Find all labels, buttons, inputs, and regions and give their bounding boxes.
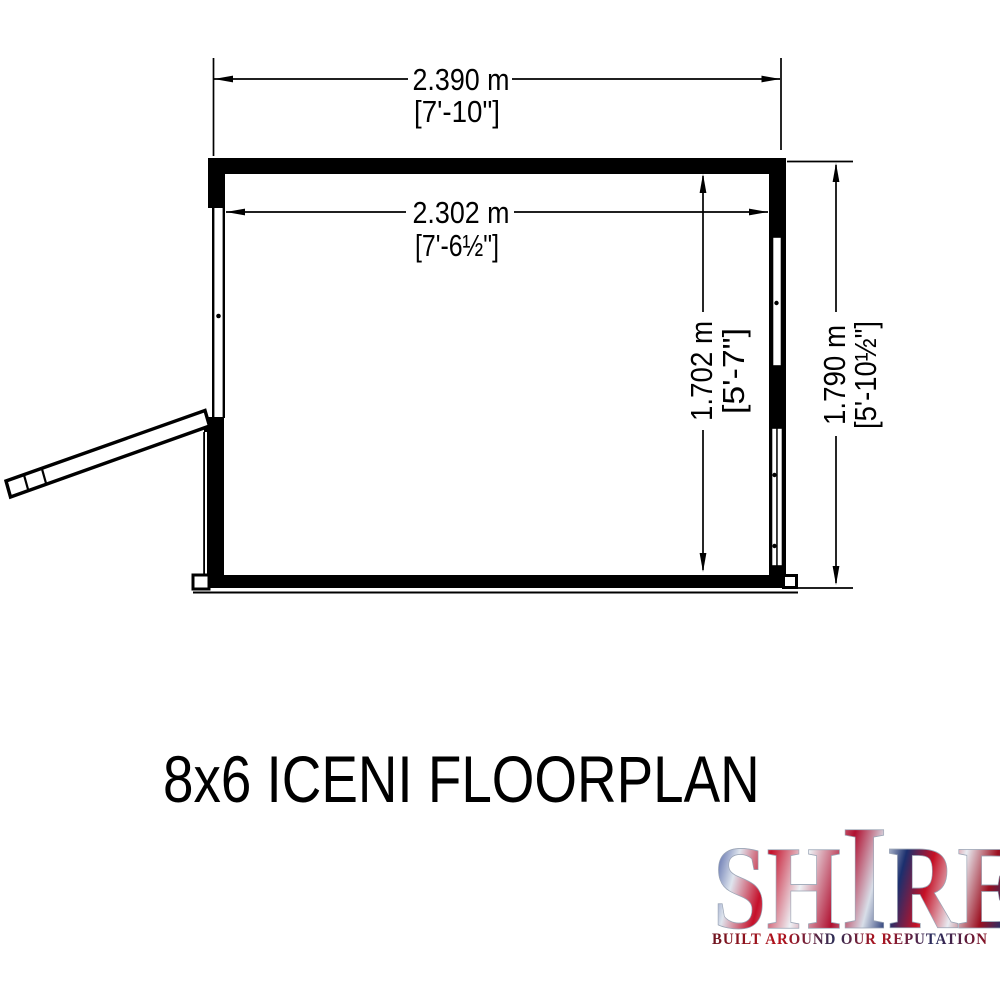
width-inner-imperial-label: [7'-6½"] [415, 228, 499, 263]
right-wall-marker-dot-1 [774, 301, 778, 305]
floorplan-page: 2.390 m [7'-10"] 2.302 m [7'-6½"] 1.702 … [0, 0, 1000, 1000]
top-right-corner-post [769, 158, 786, 230]
arrow-left [214, 76, 233, 83]
width-inner-metric-label: 2.302 m [413, 195, 510, 230]
bottom-left-corner-box [193, 575, 209, 589]
door-opening-outer-line [212, 208, 214, 418]
bottom-wall [210, 575, 783, 588]
depth-inner-metric-label: 1.702 m [684, 321, 719, 421]
door-opening-marker-dot [216, 314, 221, 319]
dimension-depth-inner: 1.702 m [5'-7"] [684, 174, 751, 572]
door-leaf-open [6, 411, 210, 498]
page-title: 8x6 ICENI FLOORPLAN [163, 746, 760, 812]
depth-outer-imperial-label: [5'-10½"] [848, 321, 883, 429]
arrow-top [833, 163, 840, 182]
top-wall [208, 158, 786, 174]
right-wall-marker-dot-2 [772, 473, 776, 477]
arrow-left [226, 209, 245, 216]
left-wall-outer-face-line [203, 432, 205, 575]
dimension-depth-outer: 1.790 m [5'-10½"] [787, 162, 883, 589]
arrow-top [700, 174, 707, 193]
dimension-width-outer: 2.390 m [7'-10"] [214, 58, 782, 156]
shire-logo: SHIRE BUILT AROUND OUR REPUTATION [700, 815, 1000, 955]
depth-inner-imperial-label: [5'-7"] [716, 328, 751, 414]
arrow-right [762, 76, 781, 83]
logo-tagline: BUILT AROUND OUR REPUTATION [712, 931, 988, 948]
width-outer-imperial-label: [7'-10"] [414, 94, 500, 129]
top-left-corner-post [208, 158, 225, 208]
width-outer-metric-label: 2.390 m [413, 62, 510, 97]
arrow-bottom [700, 553, 707, 572]
arrow-bottom [833, 566, 840, 585]
bottom-wall-outer-line [193, 592, 798, 594]
arrow-right [749, 209, 768, 216]
dimension-width-inner: 2.302 m [7'-6½"] [226, 195, 768, 263]
left-wall-lower [207, 432, 224, 575]
bottom-right-corner-box [784, 576, 797, 588]
right-wall-marker-dot-3 [772, 544, 776, 548]
depth-outer-metric-label: 1.790 m [817, 325, 852, 425]
door-opening-inner-line [223, 208, 225, 418]
door-leaf [6, 411, 210, 498]
